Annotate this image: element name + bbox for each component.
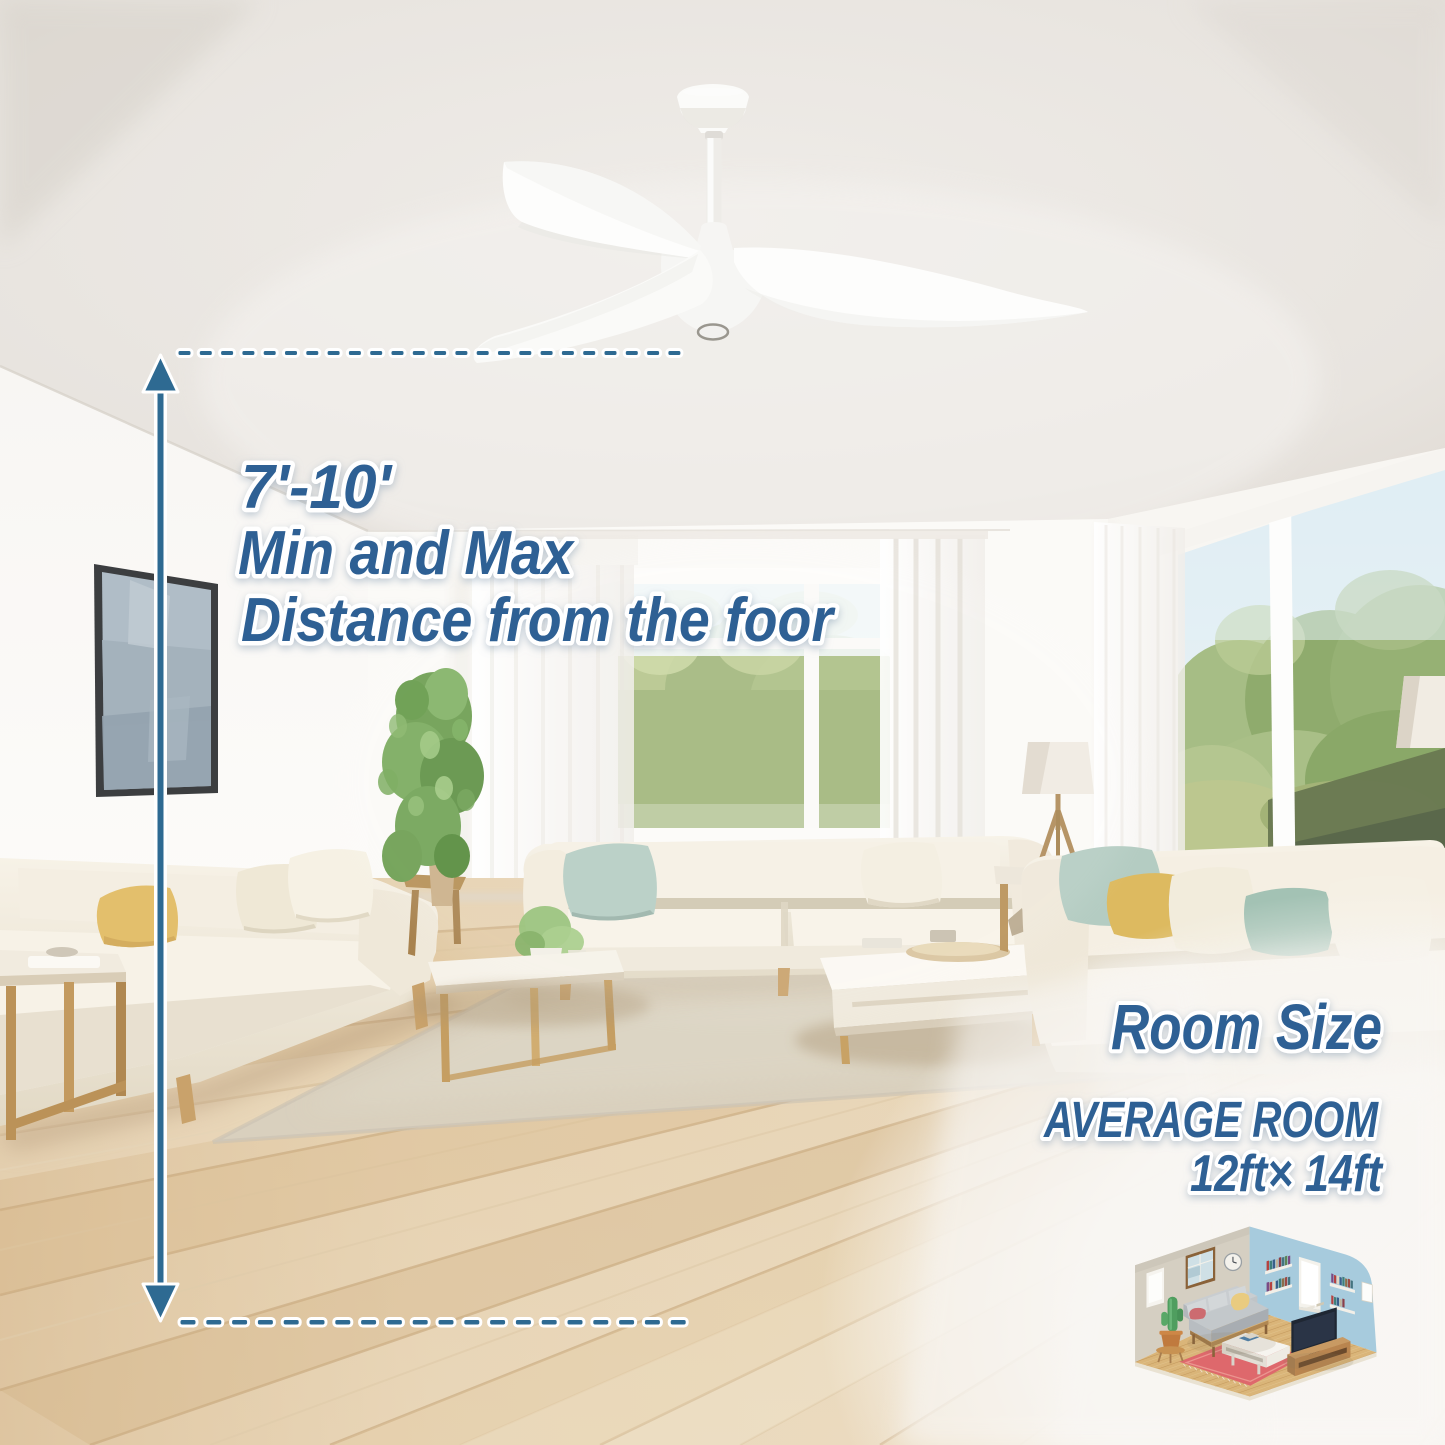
svg-text:Distance from the foor: Distance from the foor <box>241 586 836 655</box>
svg-text:Min and Max: Min and Max <box>238 519 575 588</box>
svg-text:7'-10': 7'-10' <box>241 453 393 522</box>
svg-text:AVERAGE ROOM: AVERAGE ROOM <box>1042 1091 1379 1148</box>
svg-text:12ft× 14ft: 12ft× 14ft <box>1190 1145 1384 1203</box>
svg-text:Room Size: Room Size <box>1111 991 1382 1063</box>
